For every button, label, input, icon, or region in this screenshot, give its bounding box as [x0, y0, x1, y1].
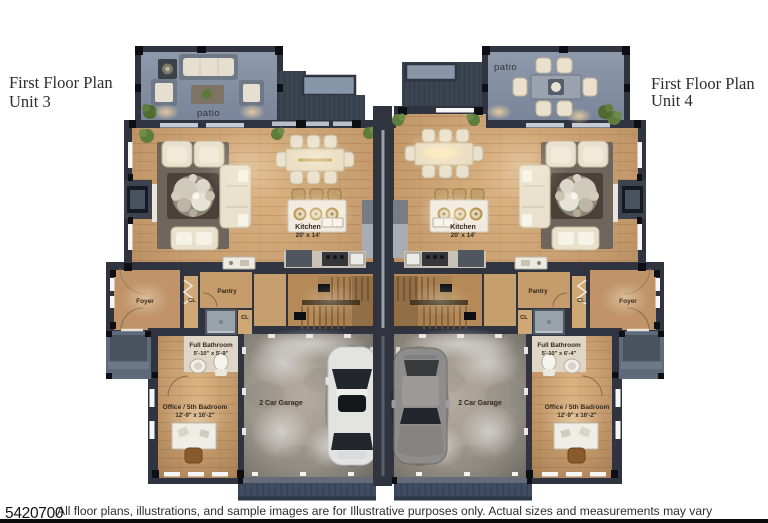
svg-text:12'-9" x 16'-2": 12'-9" x 16'-2": [557, 413, 596, 419]
svg-text:Pantry: Pantry: [217, 288, 237, 295]
svg-text:Office / 5th Badroom: Office / 5th Badroom: [545, 404, 610, 411]
svg-text:2 Car Garage: 2 Car Garage: [259, 400, 303, 407]
svg-text:Foyer: Foyer: [136, 298, 154, 305]
svg-text:Kitchen: Kitchen: [295, 224, 321, 231]
svg-text:20' x 14': 20' x 14': [451, 232, 476, 239]
svg-text:Unit 3: Unit 3: [9, 92, 51, 111]
svg-text:Pantry: Pantry: [528, 288, 548, 295]
svg-text:Unit 4: Unit 4: [651, 91, 693, 110]
svg-text:CL: CL: [577, 298, 585, 304]
svg-text:12'-9" x 16'-2": 12'-9" x 16'-2": [175, 413, 214, 419]
svg-text:First Floor Plan: First Floor Plan: [9, 73, 113, 92]
svg-text:Kitchen: Kitchen: [450, 224, 476, 231]
svg-text:5'-10" x 6'-4": 5'-10" x 6'-4": [542, 351, 577, 357]
svg-text:CL: CL: [241, 315, 249, 321]
svg-text:Full Bathroom: Full Bathroom: [537, 342, 581, 349]
svg-text:Foyer: Foyer: [619, 298, 637, 305]
svg-text:patio: patio: [197, 108, 220, 119]
svg-text:2 Car Garage: 2 Car Garage: [458, 400, 502, 407]
svg-text:CL: CL: [520, 315, 528, 321]
svg-text:Office / 5th Badroom: Office / 5th Badroom: [163, 404, 228, 411]
svg-text:All floor plans, illustrations: All floor plans, illustrations, and samp…: [57, 504, 713, 518]
svg-text:patio: patio: [494, 62, 517, 73]
svg-text:20' x 14': 20' x 14': [296, 232, 321, 239]
svg-text:Full Bathroom: Full Bathroom: [189, 342, 233, 349]
svg-text:5'-10" x 5'-9": 5'-10" x 5'-9": [194, 351, 229, 357]
svg-text:CL: CL: [188, 298, 196, 304]
